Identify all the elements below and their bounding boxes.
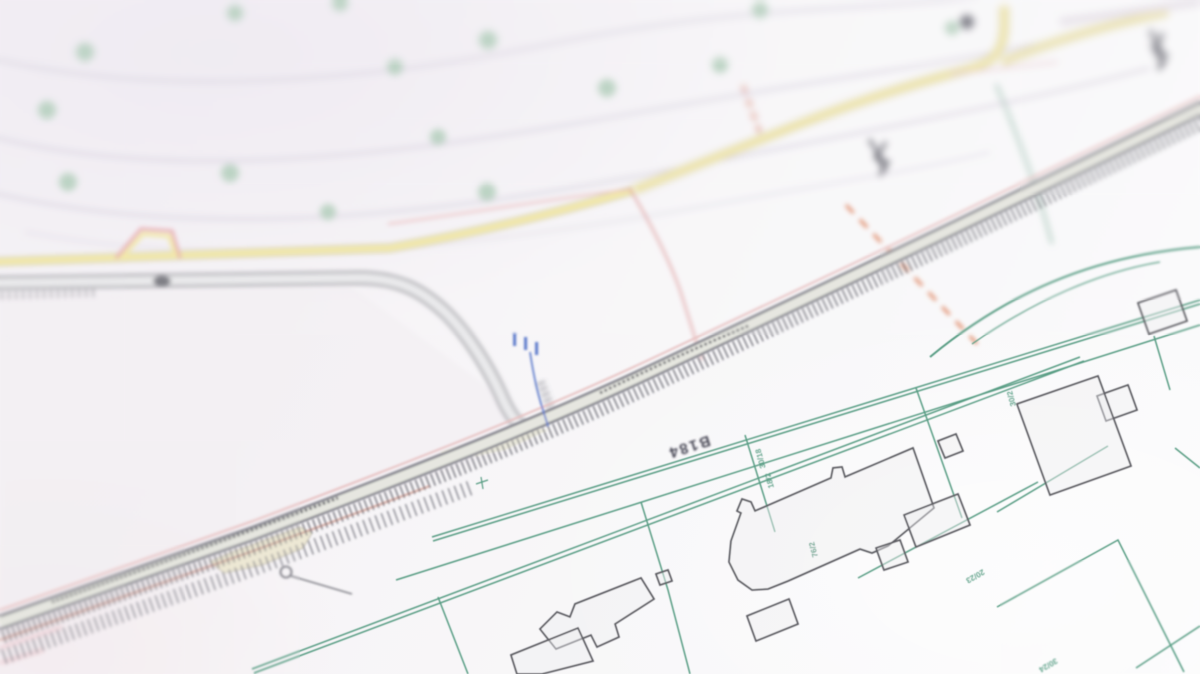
building-parallelogram: [747, 599, 798, 641]
parcel-label: 30/2: [1005, 389, 1018, 407]
map-symbol-blob: [960, 15, 974, 29]
lamp-symbol-tail: [291, 576, 352, 594]
parcel-label: 30/24: [1037, 656, 1059, 674]
minor-road-far: [634, 2, 1200, 190]
parcel-label: 18/2: [763, 471, 776, 489]
red-boundary-line: [630, 189, 702, 360]
culvert-mark: [153, 276, 171, 286]
mid-layer: [0, 189, 982, 663]
cadastral-map-photo: B184: [0, 0, 1200, 674]
pink-corner-lines: [0, 627, 62, 663]
parcel-label: 20/23: [964, 567, 986, 585]
building-rect-right-top: [1138, 290, 1187, 334]
minor-road-near: [0, 190, 634, 262]
building-tiny-square-right: [938, 434, 963, 458]
tree-symbols: [38, 0, 959, 220]
map-drawing: B184: [0, 0, 1200, 674]
lamp-symbol: [281, 567, 292, 578]
building-tiny-square: [656, 570, 672, 585]
